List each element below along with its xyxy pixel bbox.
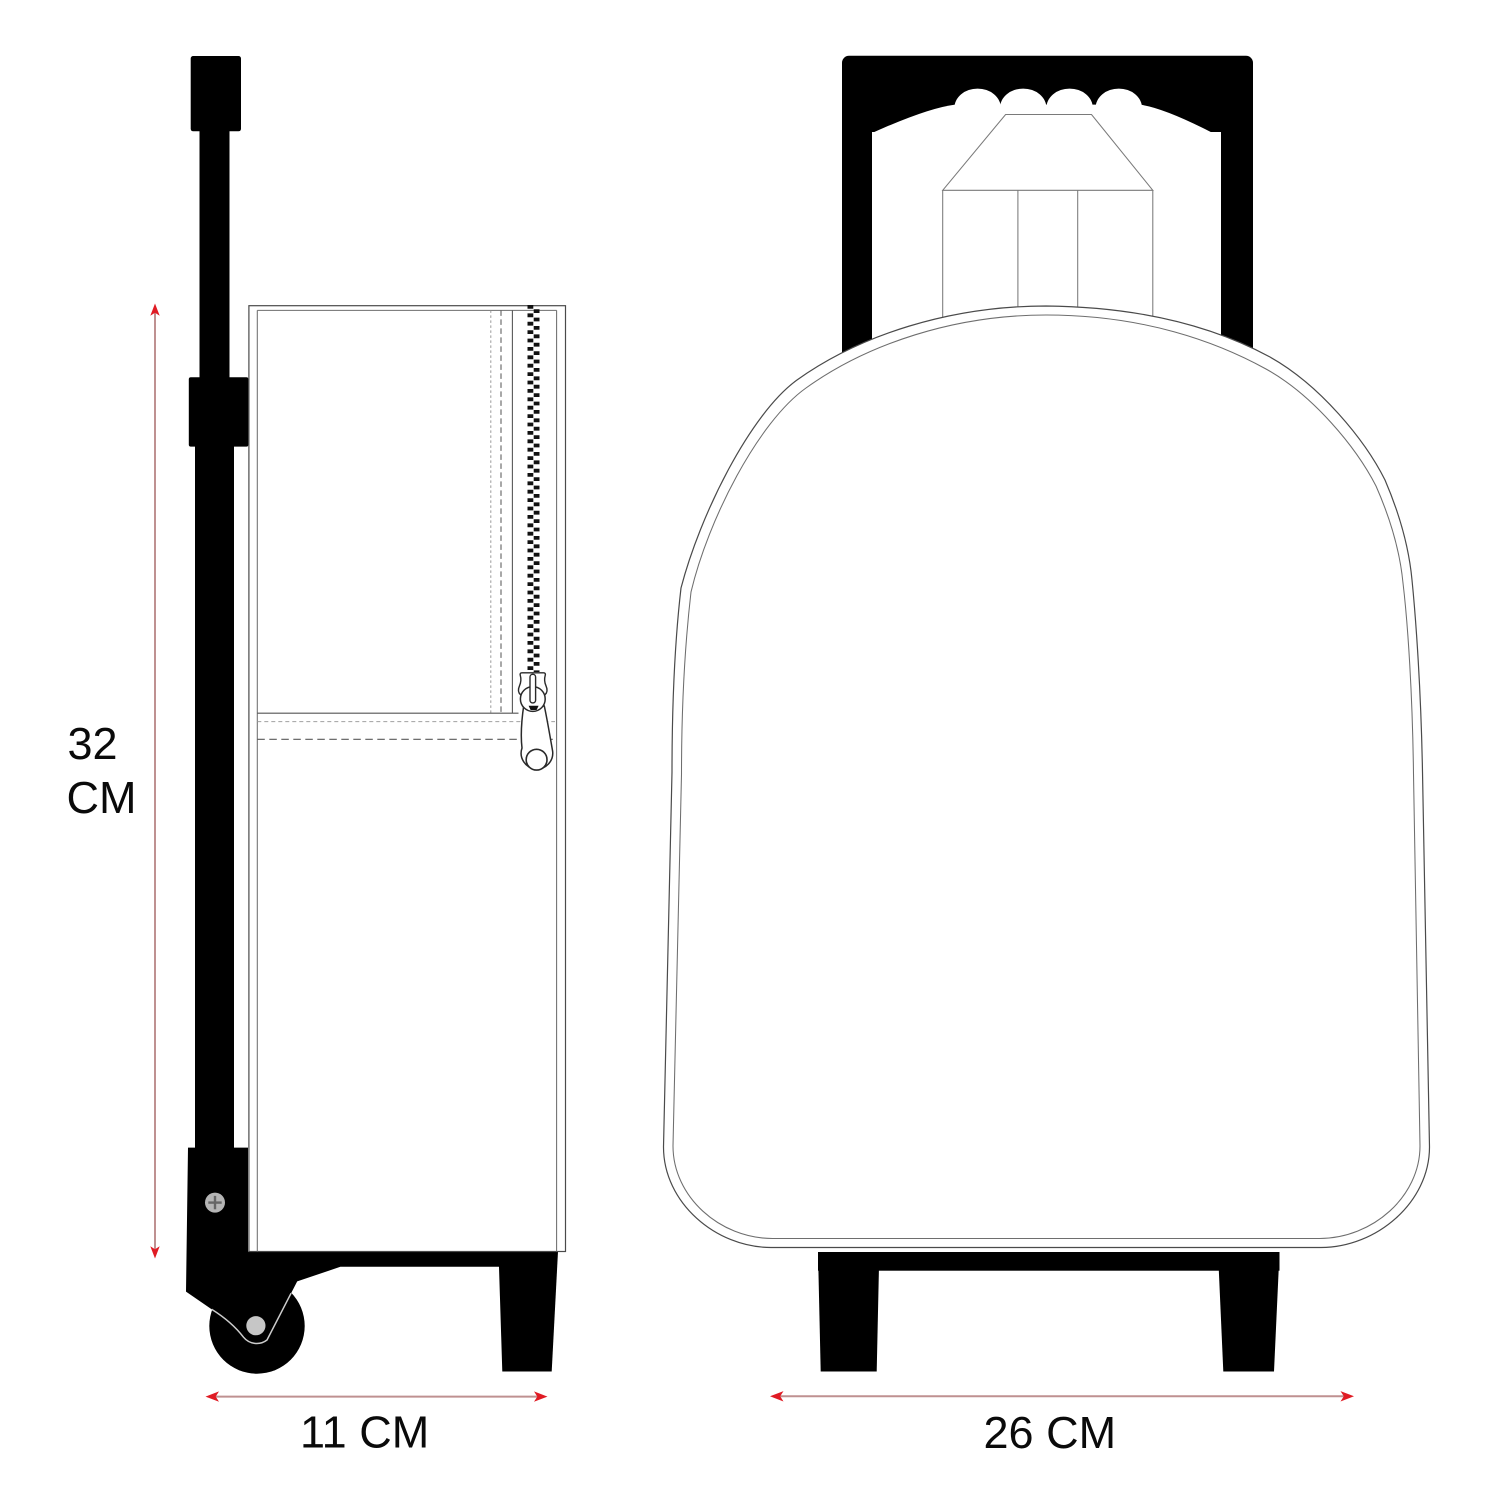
svg-text:CM: CM [67,772,137,823]
svg-text:11 CM: 11 CM [300,1407,429,1458]
svg-text:26 CM: 26 CM [984,1407,1117,1458]
svg-text:32: 32 [68,718,118,769]
